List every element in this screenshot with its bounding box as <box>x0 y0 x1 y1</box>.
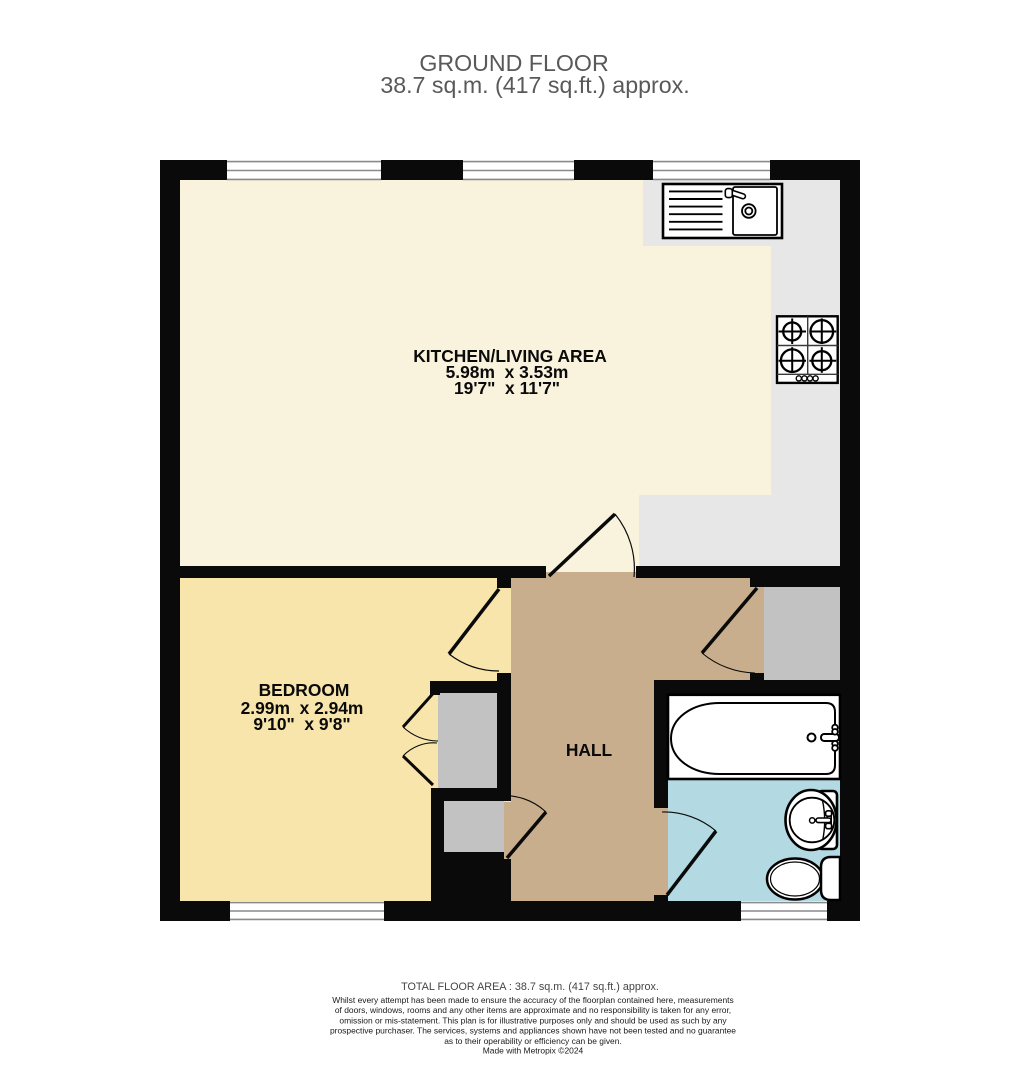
svg-text:19'7" x 11'7": 19'7" x 11'7" <box>454 378 560 398</box>
svg-text:Whilst every attempt has been: Whilst every attempt has been made to en… <box>332 995 733 1005</box>
svg-text:TOTAL FLOOR AREA : 38.7 sq.m.: TOTAL FLOOR AREA : 38.7 sq.m. (417 sq.ft… <box>401 981 659 993</box>
svg-text:BEDROOM: BEDROOM <box>259 680 350 700</box>
svg-text:HALL: HALL <box>566 740 613 760</box>
svg-text:omission or mis-statement. Thi: omission or mis-statement. This plan is … <box>339 1015 727 1025</box>
svg-text:38.7 sq.m. (417 sq.ft.) approx: 38.7 sq.m. (417 sq.ft.) approx. <box>380 72 689 98</box>
svg-text:9'10" x 9'8": 9'10" x 9'8" <box>253 714 350 734</box>
svg-text:prospective purchaser. The ser: prospective purchaser. The services, sys… <box>330 1026 736 1036</box>
svg-text:as to their operability or eff: as to their operability or efficiency ca… <box>444 1036 622 1046</box>
svg-text:of doors, windows, rooms and a: of doors, windows, rooms and any other i… <box>335 1005 731 1015</box>
svg-text:Made with Metropix ©2024: Made with Metropix ©2024 <box>483 1046 584 1056</box>
